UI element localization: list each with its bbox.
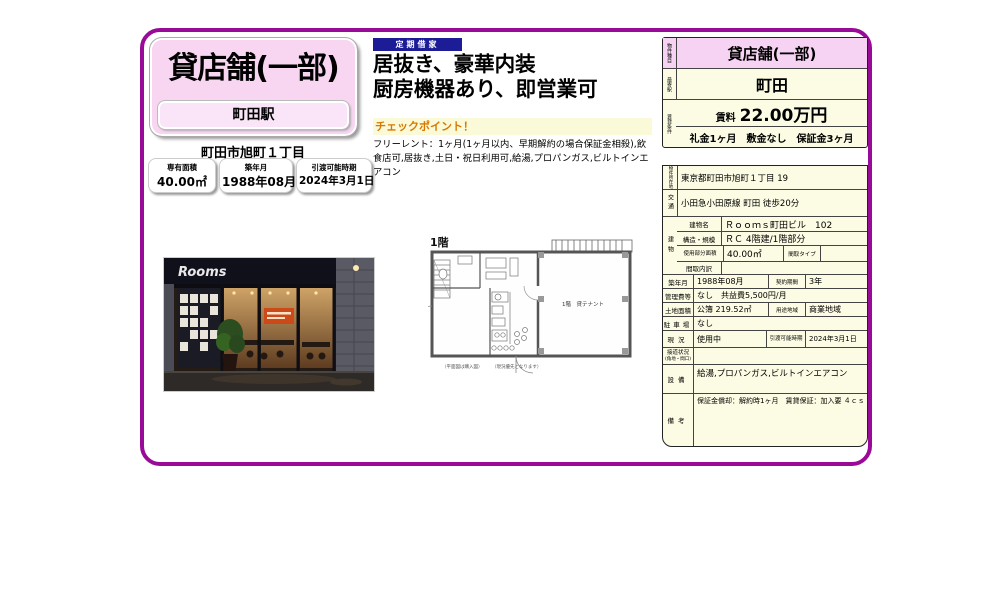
zoning-label: 用途地域 <box>768 303 805 316</box>
access-label: 交通 <box>663 190 677 216</box>
floorplan-floor-label: 1階 <box>430 235 449 249</box>
floorplan-room-label: 1階 貸テナント <box>562 300 604 308</box>
address-value: 東京都町田市旭町１丁目 19 <box>677 166 867 189</box>
building-name-label: 建物名 <box>677 217 721 231</box>
lease-type-badge: 定期借家 <box>373 38 462 51</box>
rent-value: 22.00万円 <box>740 101 828 126</box>
headline-line2: 厨房機器あり、即営業可 <box>373 77 663 102</box>
building-name-row: 建物名 Ｒｏｏｍｓ町田ビル 102 <box>677 217 867 231</box>
madori-type-value <box>820 246 867 260</box>
summary-fees-row: 礼金1ヶ月 敷金なし 保証金3ヶ月 <box>676 126 867 147</box>
summary-station-label: 最寄駅 <box>663 69 676 99</box>
contract-value: 3年 <box>805 275 867 288</box>
row-building: 建物 建物名 Ｒｏｏｍｓ町田ビル 102 構造・規模 ＲＣ 4階建/1階部分 使… <box>663 216 867 274</box>
status-value: 使用中 <box>693 331 766 347</box>
zoning-value: 商業地域 <box>805 303 867 316</box>
badge-handover: 引渡可能時期 2024年3月1日 <box>296 158 372 193</box>
floorplan: 1階 <box>428 234 642 386</box>
spec-badges: 専有面積 40.00㎡ 築年月 1988年08月 引渡可能時期 2024年3月1… <box>148 158 372 193</box>
exterior-light <box>353 265 359 271</box>
badge-area-value: 40.00㎡ <box>151 173 213 190</box>
summary-row-type: 物件種目 貸店舗(一部) <box>663 38 867 68</box>
floorplan-note2: （現況優先となります） <box>492 363 541 370</box>
status-label: 現況 <box>663 331 693 347</box>
equipment-value: 給湯,プロパンガス,ビルトインエアコン <box>693 365 867 393</box>
rent-label: 賃料 <box>716 109 736 124</box>
stone-pillar-left <box>164 284 174 374</box>
headline-line1: 居抜き、豪華内装 <box>373 52 663 77</box>
mgmt-value: なし 共益費5,500円/月 <box>693 289 867 302</box>
building-area-row: 使用部分面積 40.00㎡ 間取タイプ <box>677 245 867 260</box>
detail-table: 物件所在地 東京都町田市旭町１丁目 19 交通 小田急小田原線 町田 徒歩20分… <box>662 165 868 447</box>
row-address: 物件所在地 東京都町田市旭町１丁目 19 <box>663 166 867 189</box>
built-label: 築年月 <box>663 275 693 288</box>
building-structure-value: ＲＣ 4階建/1階部分 <box>721 232 867 245</box>
remarks-label: 備考 <box>663 394 693 446</box>
summary-row-station: 最寄駅 町田 <box>663 68 867 99</box>
madori-type-label: 間取タイプ <box>783 246 820 260</box>
madori-value <box>721 262 867 274</box>
row-access: 交通 小田急小田原線 町田 徒歩20分 <box>663 189 867 216</box>
summary-terms-label: 賃貸条件 <box>663 100 676 147</box>
road-value <box>693 348 867 364</box>
building-name-value: Ｒｏｏｍｓ町田ビル 102 <box>721 217 867 231</box>
headline: 居抜き、豪華内装 厨房機器あり、即営業可 <box>373 52 663 101</box>
badge-built: 築年月 1988年08月 <box>219 158 293 193</box>
building-madori-row: 間取内訳 <box>677 261 867 274</box>
badge-area: 専有面積 40.00㎡ <box>148 158 216 193</box>
building-area-label: 使用部分面積 <box>677 246 723 260</box>
row-built: 築年月 1988年08月 契約期間 3年 <box>663 274 867 288</box>
station-box: 町田駅 <box>158 101 349 129</box>
land-label: 土地面積 <box>663 303 693 316</box>
address-label: 物件所在地 <box>663 166 677 189</box>
handover-value: 2024年3月1日 <box>805 331 867 347</box>
road-label-sub: (角地・間口) <box>665 357 691 362</box>
land-value: 公簿 219.52㎡ <box>693 303 768 316</box>
row-status: 現況 使用中 引渡可能時期 2024年3月1日 <box>663 330 867 347</box>
handover-label: 引渡可能時期 <box>766 331 805 347</box>
property-type-card: 貸店舗(一部) 町田駅 <box>150 38 357 136</box>
built-value: 1988年08月 <box>693 275 768 288</box>
row-remarks: 備考 保証金償却：解約時1ヶ月 賃貸保証：加入要 ４ｃｓ <box>663 393 867 446</box>
badge-handover-value: 2024年3月1日 <box>299 173 369 188</box>
badge-area-label: 専有面積 <box>151 162 213 173</box>
glass-pane <box>300 288 333 368</box>
badge-built-label: 築年月 <box>222 162 290 173</box>
storefront-photo: Rooms <box>163 257 375 392</box>
summary-rent-row: 賃料 22.00万円 <box>676 100 867 126</box>
summary-type-value: 貸店舗(一部) <box>676 38 867 68</box>
building-structure-label: 構造・規模 <box>677 232 721 245</box>
remarks-value: 保証金償却：解約時1ヶ月 賃貸保証：加入要 ４ｃｓ <box>693 394 867 446</box>
parking-label: 駐車場 <box>663 317 693 330</box>
checkpoint-title: チェックポイント！ <box>373 118 652 135</box>
row-parking: 駐車場 なし <box>663 316 867 330</box>
property-flyer-sheet: 貸店舗(一部) 町田駅 町田市旭町１丁目 専有面積 40.00㎡ 築年月 198… <box>140 28 872 466</box>
building-label: 建物 <box>663 217 677 274</box>
row-land: 土地面積 公簿 219.52㎡ 用途地域 商業地域 <box>663 302 867 316</box>
building-structure-row: 構造・規模 ＲＣ 4階建/1階部分 <box>677 231 867 245</box>
mgmt-label: 管理費等 <box>663 289 693 302</box>
interior-orange-sign <box>264 308 294 324</box>
madori-label: 間取内訳 <box>677 262 721 274</box>
storefront-sign-text: Rooms <box>178 265 227 280</box>
contract-label: 契約期間 <box>768 275 805 288</box>
fees-line: 礼金1ヶ月 敷金なし 保証金3ヶ月 <box>676 127 867 147</box>
row-mgmt: 管理費等 なし 共益費5,500円/月 <box>663 288 867 302</box>
floorplan-note1: （平面図は購入図） <box>442 363 483 370</box>
row-equipment: 設備 給湯,プロパンガス,ビルトインエアコン <box>663 364 867 393</box>
summary-table: 物件種目 貸店舗(一部) 最寄駅 町田 賃貸条件 賃料 22.00万円 <box>662 37 868 148</box>
badge-handover-label: 引渡可能時期 <box>299 162 369 173</box>
row-road: 接道状況 (角地・間口) <box>663 347 867 364</box>
access-value: 小田急小田原線 町田 徒歩20分 <box>677 190 867 216</box>
summary-row-terms: 賃貸条件 賃料 22.00万円 礼金1ヶ月 敷金なし 保証金3ヶ月 <box>663 99 867 147</box>
parking-value: なし <box>693 317 867 330</box>
building-area-value: 40.00㎡ <box>723 246 783 260</box>
summary-station-value: 町田 <box>676 69 867 99</box>
summary-type-label: 物件種目 <box>663 38 676 68</box>
road-label: 接道状況 <box>667 350 689 357</box>
checkpoint-body: フリーレント：1ヶ月(1ヶ月以内、早期解約の場合保証金相殺),飲食店可,居抜き,… <box>373 138 655 180</box>
equipment-label: 設備 <box>663 365 693 393</box>
property-type-title: 貸店舗(一部) <box>152 43 355 87</box>
badge-built-value: 1988年08月 <box>222 173 290 190</box>
